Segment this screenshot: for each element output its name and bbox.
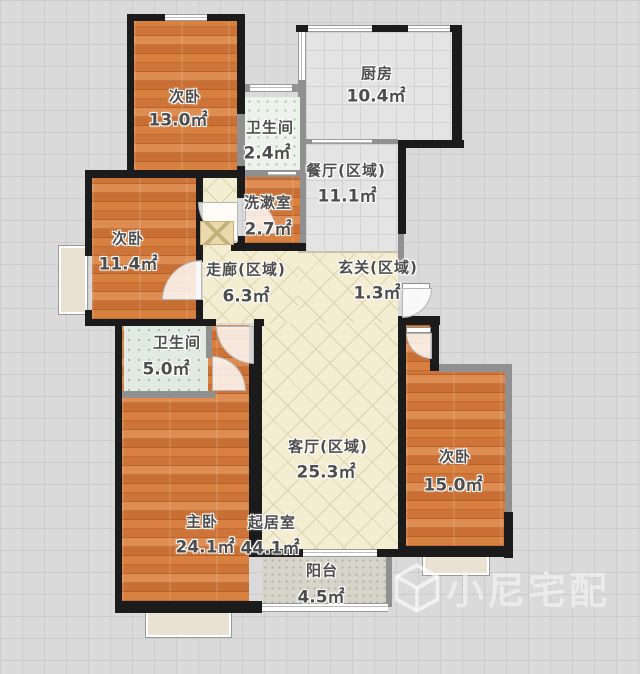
wall — [398, 316, 406, 557]
bed1-label: 次卧 — [169, 86, 201, 107]
wall — [85, 170, 92, 256]
bath1-wash-door-gap — [268, 171, 296, 176]
wall — [398, 546, 512, 557]
living-zone-area: 25.3㎡ — [297, 458, 356, 483]
bath1-area: 2.4㎡ — [243, 139, 290, 164]
living-label: 起居室 — [248, 512, 296, 533]
wall — [237, 166, 245, 177]
wash-area: 2.7㎡ — [244, 215, 291, 240]
living-zone-label: 客厅(区域) — [288, 436, 368, 457]
wall — [300, 92, 306, 243]
kitchen-area: 10.4㎡ — [347, 82, 406, 107]
entry-area: 1.3㎡ — [353, 279, 400, 304]
wall — [231, 243, 306, 251]
master-label: 主卧 — [186, 511, 218, 532]
wall — [206, 325, 212, 358]
wall — [115, 326, 122, 613]
bed2-area: 11.4㎡ — [99, 250, 158, 275]
bed3-area: 15.0㎡ — [424, 471, 483, 496]
wall — [398, 140, 464, 148]
kitchen-side-window — [298, 32, 306, 80]
wall — [196, 300, 203, 326]
balcony-label: 阳台 — [306, 560, 338, 581]
bath2-area: 5.0㎡ — [142, 355, 189, 380]
master-area: 24.1㎡ — [176, 533, 235, 558]
wall — [203, 319, 216, 326]
wall — [115, 391, 215, 398]
wall — [505, 372, 512, 514]
entrance-door-arc — [402, 288, 432, 318]
wall — [452, 25, 462, 148]
wall — [439, 364, 512, 372]
corridor-area: 6.3㎡ — [222, 282, 269, 307]
kitchen-window-2 — [408, 25, 450, 32]
bed1-window — [165, 14, 207, 21]
watermark-cube-icon — [394, 563, 440, 613]
wash-label: 洗漱室 — [244, 192, 292, 213]
balcony-sliding-door — [303, 549, 377, 557]
bath1-label: 卫生间 — [246, 117, 294, 138]
balcony-area: 4.5㎡ — [297, 583, 344, 608]
kitchen-label: 厨房 — [361, 63, 393, 84]
dining-label: 餐厅(区域) — [306, 160, 386, 181]
bed2-label: 次卧 — [112, 228, 144, 249]
kitchen-window — [308, 25, 372, 32]
corridor-label: 走廊(区域) — [206, 259, 286, 280]
door-threshold — [200, 221, 234, 245]
wall — [127, 14, 134, 177]
watermark-text: 小尼宅配 — [446, 560, 610, 615]
wall — [298, 80, 306, 97]
wall — [386, 557, 392, 607]
zone-divider — [298, 251, 398, 253]
bath1-window — [250, 84, 292, 92]
kitchen-dining-pass — [312, 139, 372, 144]
wall — [237, 14, 245, 114]
bed1-area: 13.0㎡ — [149, 106, 208, 131]
wall — [85, 170, 237, 178]
entry-label: 玄关(区域) — [338, 257, 418, 278]
bath2-label: 卫生间 — [153, 332, 201, 353]
watermark: 小尼宅配 — [394, 560, 610, 615]
bed2-bay-window — [59, 246, 87, 314]
wall — [254, 319, 264, 326]
wall — [398, 140, 406, 234]
living-area: 44.1㎡ — [241, 534, 300, 559]
wall — [115, 601, 262, 613]
master-bay-window — [146, 611, 231, 637]
dining-area: 11.1㎡ — [318, 182, 377, 207]
floor-plan-canvas: 次卧 13.0㎡ 卫生间 2.4㎡ 厨房 10.4㎡ 餐厅(区域) 11.1㎡ … — [0, 0, 640, 674]
bed3-label: 次卧 — [439, 446, 471, 467]
